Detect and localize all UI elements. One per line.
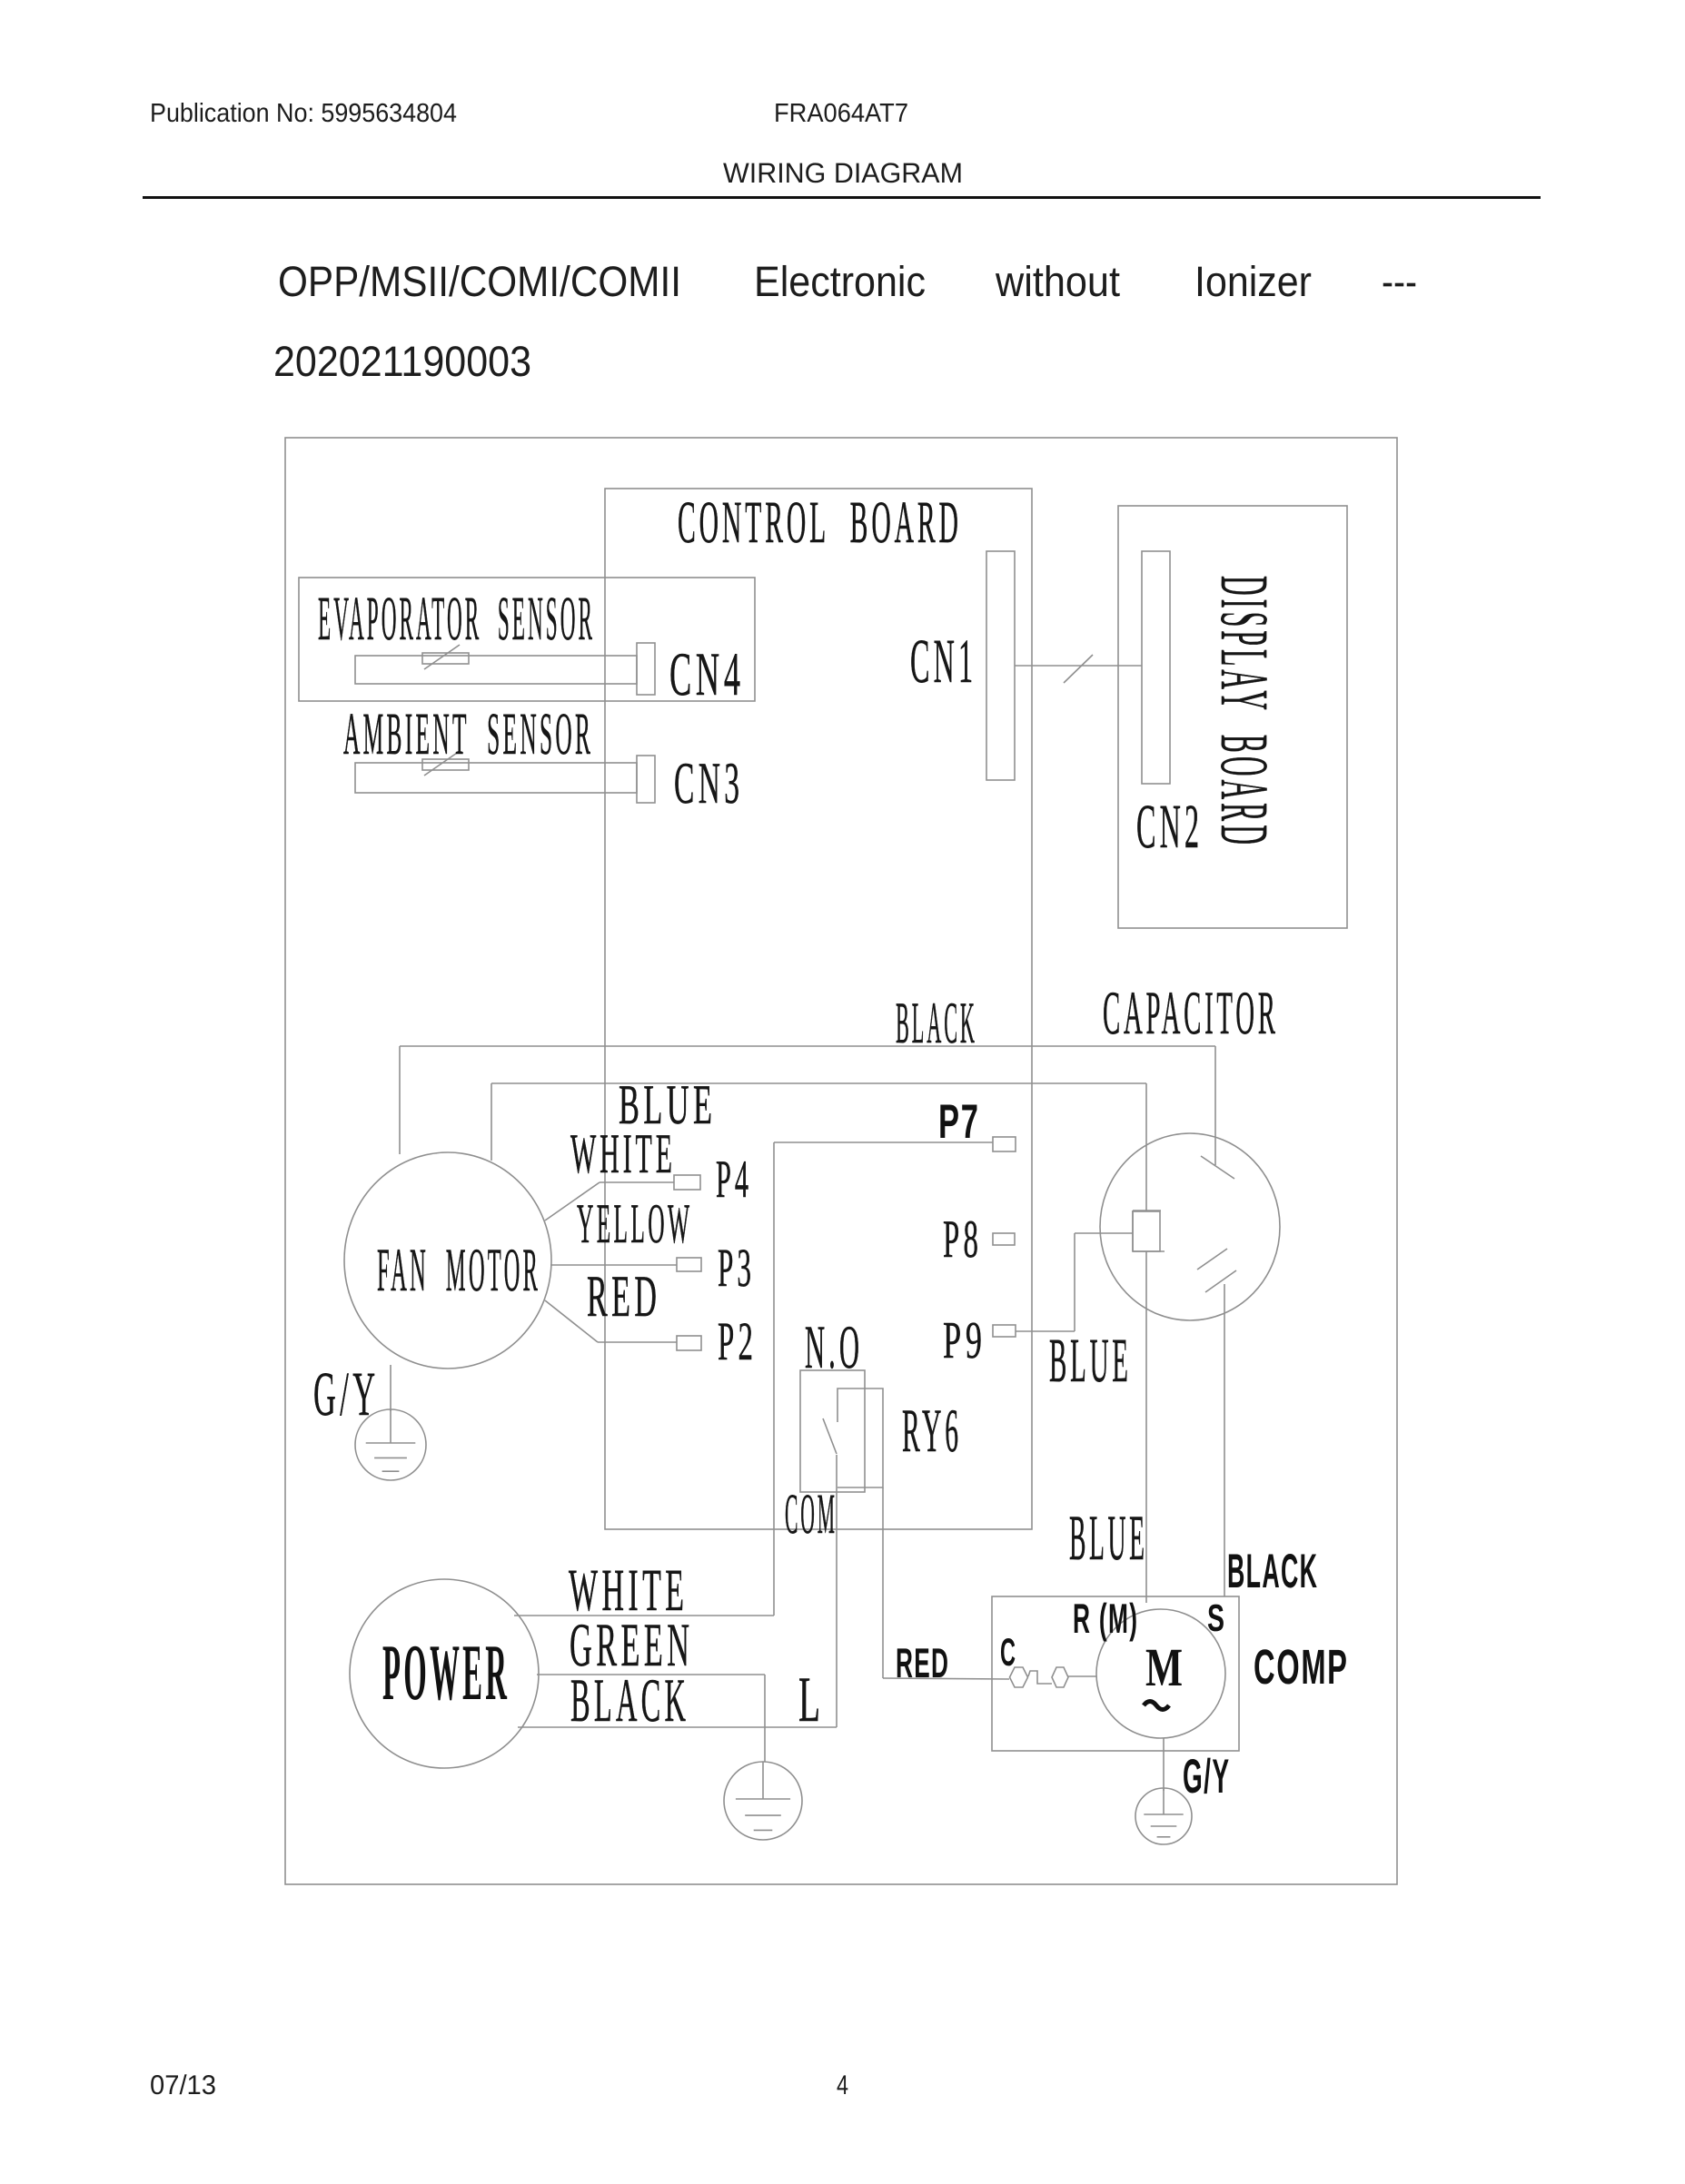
svg-text:CONTROL BOARD: CONTROL BOARD (678, 489, 962, 556)
svg-text:DISPLAY BOARD: DISPLAY BOARD (1206, 576, 1282, 848)
svg-text:WIRING DIAGRAM: WIRING DIAGRAM (723, 157, 963, 189)
svg-text:RED: RED (896, 1639, 949, 1686)
svg-text:P3: P3 (718, 1238, 755, 1298)
svg-text:P7: P7 (938, 1095, 980, 1149)
svg-text:G/Y: G/Y (313, 1359, 379, 1428)
svg-text:CN2: CN2 (1136, 792, 1203, 861)
svg-text:CN3: CN3 (674, 751, 743, 816)
svg-text:FAN MOTOR: FAN MOTOR (377, 1235, 540, 1304)
svg-text:COMP: COMP (1254, 1640, 1349, 1695)
svg-text:Ionizer: Ionizer (1194, 257, 1312, 305)
svg-text:AMBIENT SENSOR: AMBIENT SENSOR (343, 701, 593, 767)
svg-text:P8: P8 (943, 1209, 982, 1269)
svg-text:WHITE: WHITE (570, 1123, 676, 1185)
svg-text:N.O: N.O (805, 1312, 863, 1381)
svg-text:YELLOW: YELLOW (577, 1193, 692, 1255)
svg-text:Publication No: 5995634804: Publication No: 5995634804 (150, 99, 457, 128)
svg-text:POWER: POWER (382, 1629, 510, 1717)
svg-text:R (M): R (M) (1073, 1595, 1138, 1642)
svg-text:202021190003: 202021190003 (273, 337, 531, 385)
svg-text:M: M (1145, 1637, 1183, 1697)
svg-text:P2: P2 (718, 1311, 757, 1371)
svg-text:BLUE: BLUE (1049, 1326, 1132, 1395)
svg-text:BLACK: BLACK (896, 991, 977, 1056)
svg-text:BLACK: BLACK (570, 1665, 689, 1734)
svg-text:CAPACITOR: CAPACITOR (1103, 978, 1279, 1047)
svg-text:4: 4 (837, 2070, 848, 2100)
svg-text:G/Y: G/Y (1183, 1750, 1230, 1804)
svg-text:FRA064AT7: FRA064AT7 (774, 99, 908, 128)
svg-text:C: C (1000, 1631, 1016, 1675)
svg-text:CN4: CN4 (669, 639, 745, 708)
svg-text:BLACK: BLACK (1227, 1545, 1318, 1598)
svg-text:07/13: 07/13 (150, 2070, 216, 2100)
svg-text:L: L (798, 1665, 825, 1735)
svg-text:EVAPORATOR SENSOR: EVAPORATOR SENSOR (318, 584, 595, 653)
svg-text:P4: P4 (716, 1149, 752, 1209)
svg-text:Electronic: Electronic (754, 257, 926, 305)
svg-text:RY6: RY6 (902, 1396, 962, 1465)
svg-text:OPP/MSII/COMI/COMII: OPP/MSII/COMI/COMII (278, 257, 681, 305)
svg-text:without: without (995, 257, 1120, 305)
svg-text:COM: COM (785, 1482, 838, 1546)
svg-text:P9: P9 (943, 1310, 986, 1369)
svg-text:BLUE: BLUE (1069, 1503, 1148, 1574)
svg-text:CN1: CN1 (910, 627, 976, 696)
svg-text:RED: RED (587, 1264, 660, 1329)
svg-text:S: S (1207, 1596, 1225, 1639)
svg-text:---: --- (1382, 257, 1417, 305)
